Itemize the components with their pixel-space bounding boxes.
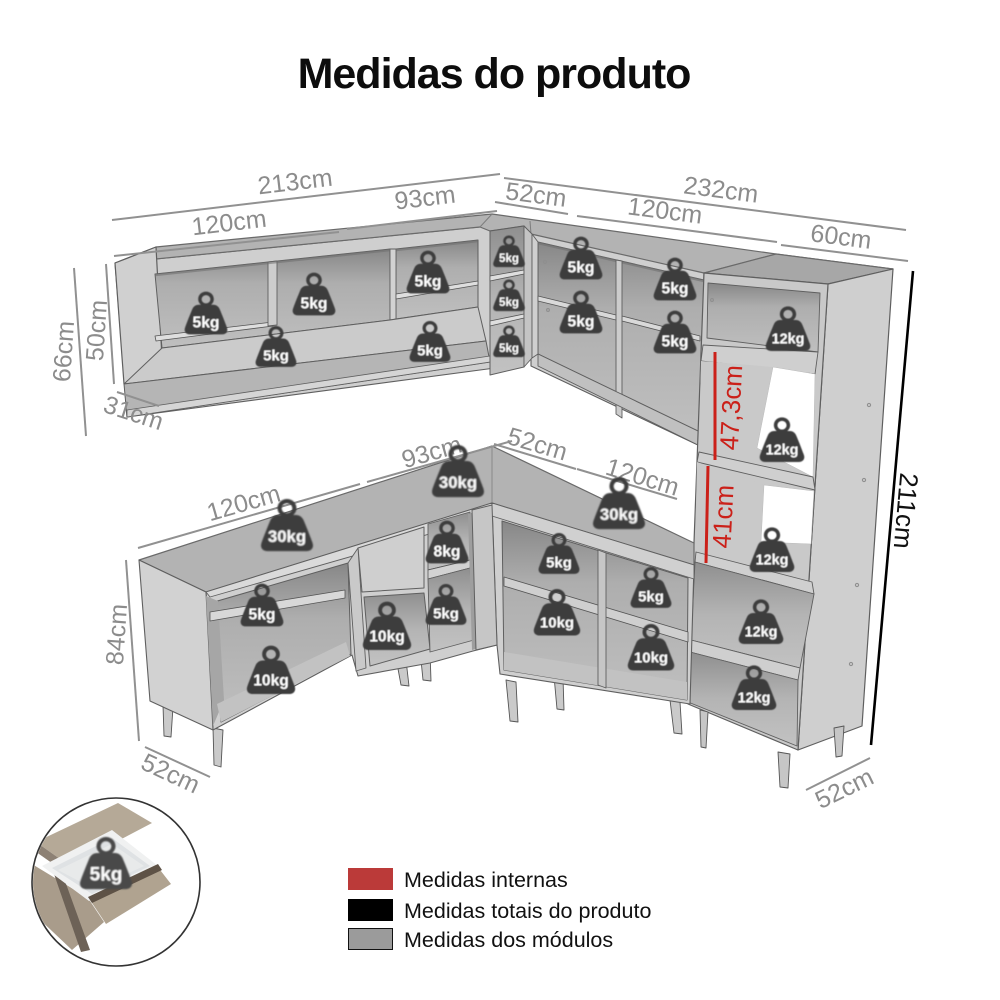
svg-text:5kg: 5kg <box>638 588 664 605</box>
svg-text:30kg: 30kg <box>268 527 306 546</box>
svg-text:5kg: 5kg <box>249 607 276 624</box>
svg-text:52cm: 52cm <box>504 177 568 213</box>
svg-text:5kg: 5kg <box>301 296 328 313</box>
svg-text:5kg: 5kg <box>662 334 689 351</box>
svg-text:Medidas dos módulos: Medidas dos módulos <box>404 928 613 952</box>
svg-text:47,3cm: 47,3cm <box>714 364 748 451</box>
svg-text:5kg: 5kg <box>415 274 442 291</box>
svg-text:12kg: 12kg <box>738 690 771 706</box>
svg-text:5kg: 5kg <box>433 605 459 622</box>
svg-text:30kg: 30kg <box>600 505 638 524</box>
svg-text:10kg: 10kg <box>369 629 405 646</box>
svg-text:Medidas internas: Medidas internas <box>404 868 568 892</box>
svg-text:12kg: 12kg <box>766 442 799 458</box>
svg-text:8kg: 8kg <box>434 544 461 561</box>
svg-text:5kg: 5kg <box>568 314 595 331</box>
svg-text:Medidas totais do produto: Medidas totais do produto <box>404 899 651 923</box>
svg-text:5kg: 5kg <box>417 342 443 359</box>
svg-text:5kg: 5kg <box>662 281 689 298</box>
svg-text:5kg: 5kg <box>499 343 519 355</box>
svg-text:52cm: 52cm <box>137 748 204 799</box>
svg-text:Medidas do produto: Medidas do produto <box>298 50 691 98</box>
svg-text:10kg: 10kg <box>540 615 574 632</box>
svg-text:10kg: 10kg <box>634 650 668 667</box>
svg-text:10kg: 10kg <box>253 673 289 690</box>
svg-text:12kg: 12kg <box>745 624 778 640</box>
svg-text:12kg: 12kg <box>772 331 805 347</box>
svg-text:5kg: 5kg <box>90 865 123 886</box>
svg-text:41cm: 41cm <box>706 484 739 549</box>
svg-text:84cm: 84cm <box>101 603 133 666</box>
svg-text:93cm: 93cm <box>393 181 457 216</box>
svg-text:66cm: 66cm <box>48 320 80 383</box>
svg-text:12kg: 12kg <box>756 552 789 568</box>
svg-text:5kg: 5kg <box>499 297 519 309</box>
svg-text:5kg: 5kg <box>263 347 289 364</box>
svg-text:5kg: 5kg <box>499 253 519 265</box>
svg-text:5kg: 5kg <box>568 260 595 277</box>
svg-text:5kg: 5kg <box>193 315 220 332</box>
svg-text:50cm: 50cm <box>81 299 113 362</box>
svg-text:5kg: 5kg <box>546 554 572 571</box>
svg-text:30kg: 30kg <box>439 473 477 492</box>
